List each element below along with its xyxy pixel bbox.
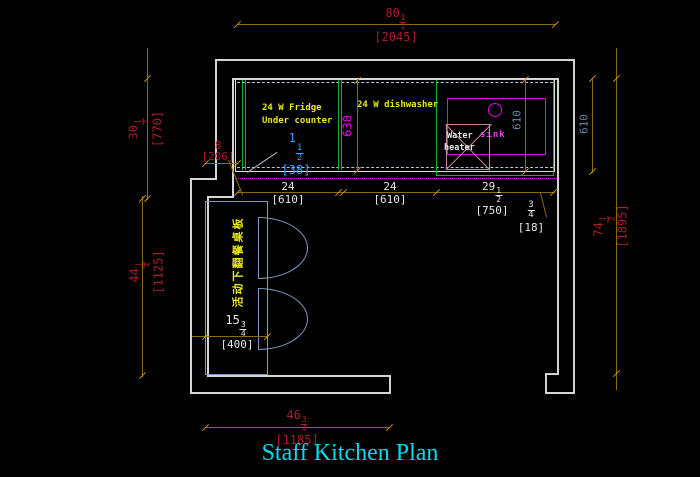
dim-fridge-width-imperial: 24 xyxy=(271,180,304,193)
wall-left-lower-outer xyxy=(190,178,192,394)
counter-dashed-back-edge xyxy=(237,82,553,83)
dim-counter-depth-mid: 630 xyxy=(342,115,355,137)
dim-left-upper-metric: [770] xyxy=(152,111,165,147)
wall-right-inner xyxy=(557,78,559,375)
faucet-hole-circle xyxy=(488,103,502,117)
dim-line-counter-depth-inner xyxy=(525,79,526,172)
dim-top-width-metric: [2045] xyxy=(374,31,417,44)
dim-end-gap-metric: [18] xyxy=(518,223,545,233)
dim-table-width-imperial: 1534 xyxy=(225,314,246,338)
counter-overhang-dotted-line xyxy=(235,178,557,179)
fold-down-leaf-swing xyxy=(258,217,308,279)
wall-right-foot-bottom xyxy=(545,392,575,394)
dim-right-height-imperial: 7412 xyxy=(593,204,617,247)
dishwasher-label: 24 W dishwasher xyxy=(357,100,438,110)
cabinet-divider-line xyxy=(338,80,339,170)
dim-top-width-imperial: 8012 xyxy=(374,7,417,31)
dim-end-gap: 34 [18] xyxy=(518,199,545,233)
dim-counter-depth-outer: 610 xyxy=(578,114,591,134)
sink-cabinet-front-line xyxy=(436,175,554,176)
dim-left-upper-imperial: 3014 xyxy=(128,111,152,147)
plan-title: Staff Kitchen Plan xyxy=(262,440,439,467)
fridge-label-line2: Under counter xyxy=(262,116,332,126)
wall-left-upper-inner xyxy=(232,78,234,198)
dim-wall-offset-metric: [206] xyxy=(201,151,234,162)
dim-bottom-width-imperial: 4634 xyxy=(275,408,318,433)
dim-counter-clearance-imperial: 112 xyxy=(282,131,311,163)
fold-down-leaf-swing xyxy=(258,288,308,350)
wall-door-jamb xyxy=(389,375,391,394)
dim-right-height-metric: [1895] xyxy=(617,204,630,247)
dim-line-counter-depth-outer xyxy=(592,78,593,173)
dim-counter-depth-inner: 610 xyxy=(511,110,524,130)
dim-dishwasher-width-imperial: 24 xyxy=(373,180,406,193)
dim-tick xyxy=(552,21,559,28)
dim-left-upper: 3014 [770] xyxy=(128,111,165,147)
dim-sink-cabinet-width-metric: [750] xyxy=(475,204,508,217)
water-heater-label-line2: heater xyxy=(444,143,475,153)
wall-right-outer xyxy=(573,59,575,394)
wall-bottom-outer xyxy=(190,392,391,394)
wall-step-outer xyxy=(190,178,217,180)
dim-line-counter-depth-mid xyxy=(357,79,358,172)
dim-sink-cabinet-width-imperial: 2912 xyxy=(475,180,508,204)
wall-step-inner xyxy=(207,196,234,198)
dim-tick xyxy=(550,189,557,196)
dim-tick xyxy=(589,168,596,175)
wall-right-foot-left xyxy=(545,373,547,394)
dim-table-width-metric: [400] xyxy=(220,338,253,351)
cabinet-divider-line xyxy=(242,80,243,170)
dim-line-wall-offset xyxy=(205,163,237,164)
fridge-label-line1: 24 W Fridge xyxy=(262,103,322,113)
dim-counter-clearance-metric: [38] xyxy=(282,163,311,178)
dim-left-lower-metric: [1125] xyxy=(153,250,166,293)
cabinet-divider-line xyxy=(436,80,437,176)
dim-tick xyxy=(386,424,393,431)
dim-dishwasher-width: 24 [610] xyxy=(373,180,406,206)
dim-wall-offset: 8 [206] xyxy=(201,140,234,162)
dim-tick xyxy=(139,372,146,379)
wall-right-foot-top xyxy=(545,373,559,375)
wall-bottom-inner xyxy=(207,375,391,377)
water-heater-label-line1: Water xyxy=(447,131,473,141)
folding-table-note: 活动下翻餐桌板 xyxy=(232,217,245,308)
dim-fridge-width-metric: [610] xyxy=(271,193,304,206)
dim-sink-cabinet-width: 2912 [750] xyxy=(475,180,508,217)
dim-end-gap-imperial: 34 xyxy=(518,199,545,220)
cabinet-divider-line xyxy=(245,80,246,170)
dim-fridge-width: 24 [610] xyxy=(271,180,304,206)
dim-dishwasher-width-metric: [610] xyxy=(373,193,406,206)
dim-left-lower: 4414 [1125] xyxy=(129,250,166,293)
dim-left-lower-imperial: 4414 xyxy=(129,250,153,293)
kitchen-plan-canvas: sink Water heater 24 W Fridge Under coun… xyxy=(0,0,700,477)
cabinet-divider-line xyxy=(553,80,554,176)
dim-right-height: 7412 [1895] xyxy=(593,204,630,247)
dim-top-width: 8012 [2045] xyxy=(374,7,417,44)
dim-counter-clearance: 112 [38] xyxy=(282,131,311,178)
wall-top-outer xyxy=(215,59,575,61)
